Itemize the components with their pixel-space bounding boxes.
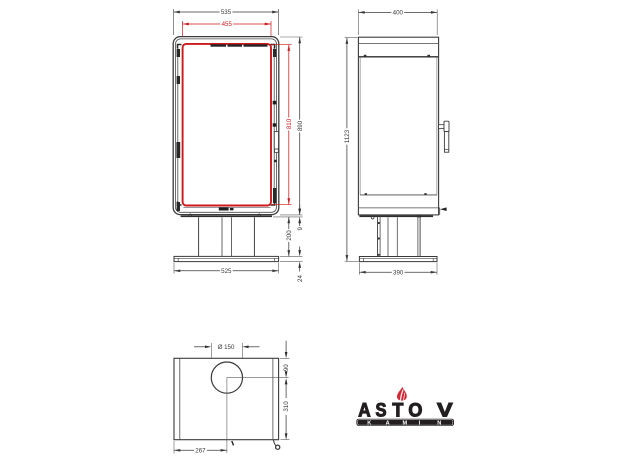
- svg-text:T: T: [392, 401, 403, 422]
- svg-text:9: 9: [297, 227, 304, 231]
- svg-text:K: K: [367, 421, 371, 427]
- svg-text:A: A: [358, 401, 371, 422]
- svg-text:V: V: [437, 401, 453, 422]
- svg-text:A: A: [386, 421, 390, 427]
- svg-text:24: 24: [297, 275, 304, 282]
- svg-text:N: N: [437, 421, 441, 427]
- svg-text:M: M: [402, 421, 407, 427]
- svg-text:535: 535: [221, 9, 232, 16]
- svg-text:525: 525: [221, 268, 232, 275]
- svg-text:455: 455: [222, 21, 233, 28]
- svg-text:810: 810: [286, 118, 293, 129]
- svg-text:400: 400: [393, 10, 404, 17]
- svg-text:267: 267: [195, 447, 206, 454]
- svg-text:890: 890: [297, 120, 304, 131]
- svg-text:200: 200: [286, 230, 293, 241]
- svg-text:Ø 150: Ø 150: [218, 344, 235, 351]
- svg-text:O: O: [408, 401, 422, 422]
- svg-text:1123: 1123: [344, 129, 351, 143]
- svg-text:S: S: [376, 401, 387, 422]
- svg-text:310: 310: [283, 401, 290, 412]
- svg-text:390: 390: [393, 269, 404, 276]
- svg-text:90: 90: [283, 364, 290, 371]
